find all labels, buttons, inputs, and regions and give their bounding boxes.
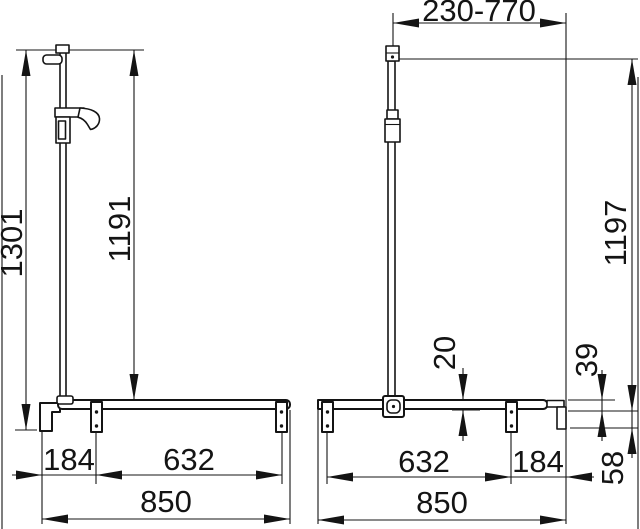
dim-rail-height-label: 1191 <box>102 196 137 263</box>
wall-bracket <box>506 402 517 432</box>
telescopic-clamp <box>385 110 400 142</box>
shower-holder-hook <box>78 108 100 130</box>
end-down-leg <box>557 407 566 429</box>
dim-bracket-to-end-label: 184 <box>512 444 564 479</box>
dim-rail-height-label: 1197 <box>598 200 633 267</box>
dim-total-height-label: 1301 <box>0 209 29 278</box>
left-view: 1301 1191 184 632 850 <box>0 45 290 524</box>
dim-upper-offset-label: 39 <box>569 343 604 377</box>
technical-drawing-page: 1301 1191 184 632 850 <box>0 0 640 529</box>
wall-elbow-left <box>40 403 60 431</box>
dim-total-width-label: 850 <box>416 485 468 520</box>
dim-total-width-label: 850 <box>140 484 192 519</box>
wall-bracket <box>91 402 102 432</box>
dimensional-drawing-canvas: 1301 1191 184 632 850 <box>0 0 640 529</box>
slider-clamp-detail <box>59 121 66 139</box>
end-step-fitting <box>547 401 564 408</box>
dim-lower-offset-label: 58 <box>595 451 630 485</box>
upper-wall-bracket-arm <box>43 55 62 64</box>
wall-bracket <box>322 402 333 432</box>
wall-bracket <box>276 402 287 432</box>
rail-top-cap <box>56 45 69 53</box>
left-view-product <box>40 45 290 432</box>
right-view-product <box>318 46 566 432</box>
dim-bar-diameter-label: 20 <box>427 336 462 370</box>
tee-junction <box>383 396 404 417</box>
dim-bracket-span-label: 632 <box>163 442 215 477</box>
dim-bracket-span-label: 632 <box>398 444 450 479</box>
vertical-slide-rail <box>60 46 66 399</box>
right-view-dimension-lines <box>318 13 638 525</box>
right-view: 230-770 1197 20 39 58 632 184 850 <box>318 0 638 525</box>
telescopic-bar-top-cap <box>386 46 399 61</box>
dim-end-to-bracket-label: 184 <box>43 442 95 477</box>
dim-slide-range-label: 230-770 <box>422 0 536 28</box>
rail-foot-fitting <box>57 396 73 404</box>
